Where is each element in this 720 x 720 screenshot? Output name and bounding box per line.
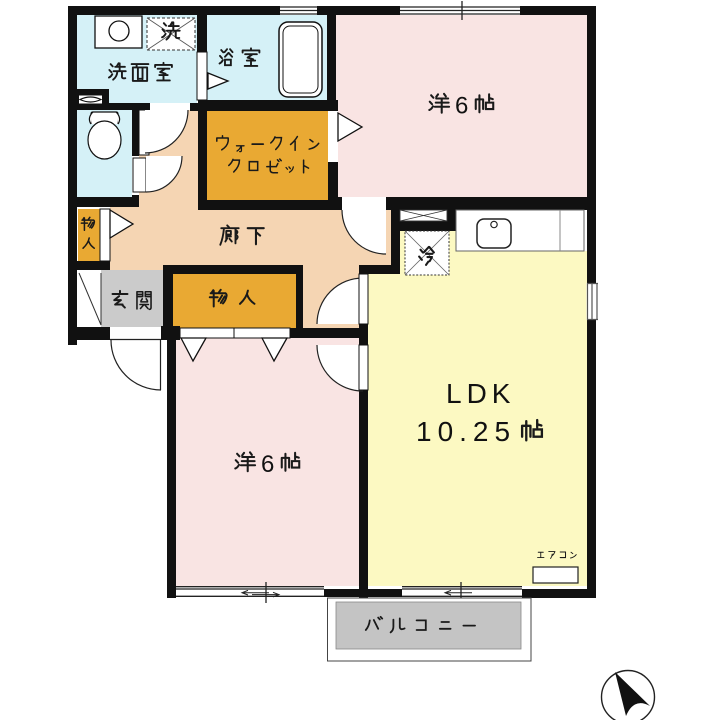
svg-text:6: 6 xyxy=(455,93,468,120)
svg-text:LDK: LDK xyxy=(446,378,515,409)
svg-text:6: 6 xyxy=(261,451,274,478)
svg-text:10.25: 10.25 xyxy=(416,416,516,447)
